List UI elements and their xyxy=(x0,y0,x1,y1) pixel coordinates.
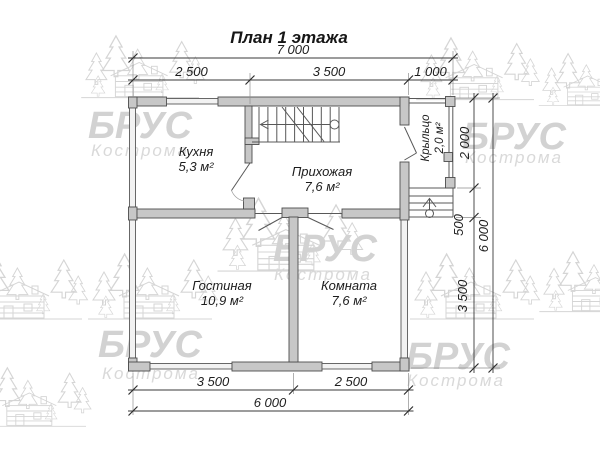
watermark-text-bottom-right: БРУС Кострома xyxy=(406,336,511,390)
wall-bottom-middle xyxy=(232,362,322,371)
dim-bottom-seg1: 3 500 xyxy=(197,374,230,389)
room-area-kitchen: 5,3 м² xyxy=(179,159,215,174)
wall-top-left xyxy=(133,97,167,106)
stair-start-marker xyxy=(330,120,339,129)
wall-bottom-left-corner xyxy=(129,362,151,371)
wall-stair-nub xyxy=(245,138,259,145)
dim-top-seg1: 2 500 xyxy=(174,64,208,79)
dim-right-total: 6 000 xyxy=(476,219,491,252)
entry-step-lines xyxy=(409,188,453,217)
dim-right-seg2: 500 xyxy=(451,213,466,235)
dim-top-total: 7 000 xyxy=(277,42,310,57)
watermark-city: Кострома xyxy=(465,148,563,167)
room-area-hallway: 7,6 м² xyxy=(305,179,341,194)
dim-right-seg1: 2 000 xyxy=(457,126,472,160)
wall-top-main xyxy=(218,97,409,106)
porch xyxy=(409,97,455,218)
wall-stair-kitchen xyxy=(245,106,252,163)
watermark-city: Кострома xyxy=(91,141,189,160)
dim-top-seg3: 1 000 xyxy=(414,64,447,79)
wall-room-divider xyxy=(289,217,298,362)
window-bedroom-right xyxy=(401,220,408,358)
dim-bottom-seg2: 2 500 xyxy=(334,374,368,389)
entry-arrow-up xyxy=(423,199,436,210)
watermark-text-bottom-left: БРУС Кострома xyxy=(98,324,203,383)
entry-start-marker xyxy=(426,210,434,218)
window-bedroom-bottom xyxy=(322,364,372,370)
room-label-living: Гостиная xyxy=(192,278,252,293)
wall-interior-door-header xyxy=(282,208,308,218)
room-area-bedroom: 7,6 м² xyxy=(332,293,368,308)
window-kitchen-left xyxy=(130,108,136,207)
room-area-living: 10,9 м² xyxy=(201,293,244,308)
window-living-left xyxy=(130,220,136,358)
staircase xyxy=(252,107,340,142)
wall-left-corner-top xyxy=(129,97,138,108)
watermark-text-top-left: БРУС Кострома xyxy=(88,105,193,160)
porch-post-top xyxy=(446,97,456,107)
porch-post-bottom xyxy=(446,178,456,189)
watermark-text-right-middle: БРУС Кострома xyxy=(462,116,567,167)
room-area-porch: 2,0 м² xyxy=(434,121,446,154)
room-label-hallway: Прихожая xyxy=(292,164,352,179)
dim-top-seg2: 3 500 xyxy=(313,64,346,79)
room-label-porch: Крыльцо xyxy=(420,114,432,162)
floor-plan-page: БРУС Кострома БРУС Кострома БРУС Костром… xyxy=(0,0,600,450)
wall-kitchen-door-stub xyxy=(244,198,255,209)
kitchen-door-leaf xyxy=(232,163,251,191)
entry-steps xyxy=(409,188,453,218)
wall-left-junction xyxy=(129,207,138,220)
porch-door-leaf xyxy=(405,127,417,160)
wall-interior-left xyxy=(137,209,255,218)
wall-right-corner-top xyxy=(400,97,409,125)
porch-right-edge xyxy=(449,107,453,178)
wall-right-corner-bottom xyxy=(400,358,409,371)
room-label-kitchen: Кухня xyxy=(179,144,214,159)
wall-right-middle xyxy=(400,162,409,220)
dim-bottom-total: 6 000 xyxy=(254,395,287,410)
wall-interior-right xyxy=(342,209,400,218)
floor-plan-svg: БРУС Кострома БРУС Кострома БРУС Костром… xyxy=(0,0,600,450)
watermark-brand: БРУС xyxy=(98,324,203,366)
window-living-bottom xyxy=(150,364,232,370)
watermark-city: Кострома xyxy=(407,371,505,390)
room-label-bedroom: Комната xyxy=(321,278,377,293)
dim-right-seg3: 3 500 xyxy=(455,279,470,312)
kitchen-door-swing xyxy=(232,191,245,202)
window-kitchen-top xyxy=(167,99,219,105)
